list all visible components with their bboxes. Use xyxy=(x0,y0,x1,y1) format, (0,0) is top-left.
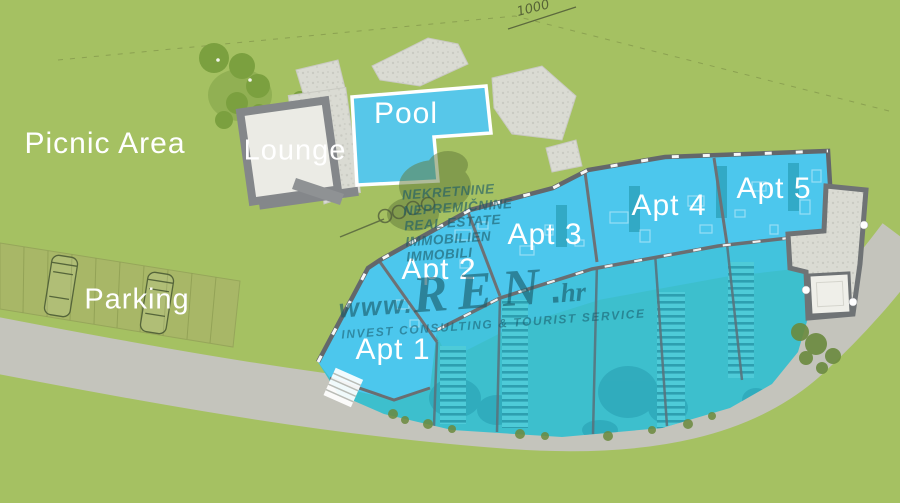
site-plan: 1000 Picnic Area Lounge Pool Parking Apt… xyxy=(0,0,900,503)
label-picnic-area: Picnic Area xyxy=(24,127,185,161)
label-pool: Pool xyxy=(374,97,438,131)
label-apt-5: Apt 5 xyxy=(736,172,811,206)
label-apt-3: Apt 3 xyxy=(507,218,582,252)
label-apt-1: Apt 1 xyxy=(355,333,430,367)
annex-house xyxy=(809,273,851,315)
label-apt-4: Apt 4 xyxy=(631,189,706,223)
site-plan-drawing: 1000 xyxy=(0,0,900,503)
label-apt-2: Apt 2 xyxy=(401,253,476,287)
label-parking: Parking xyxy=(84,284,189,317)
label-lounge: Lounge xyxy=(244,135,347,168)
